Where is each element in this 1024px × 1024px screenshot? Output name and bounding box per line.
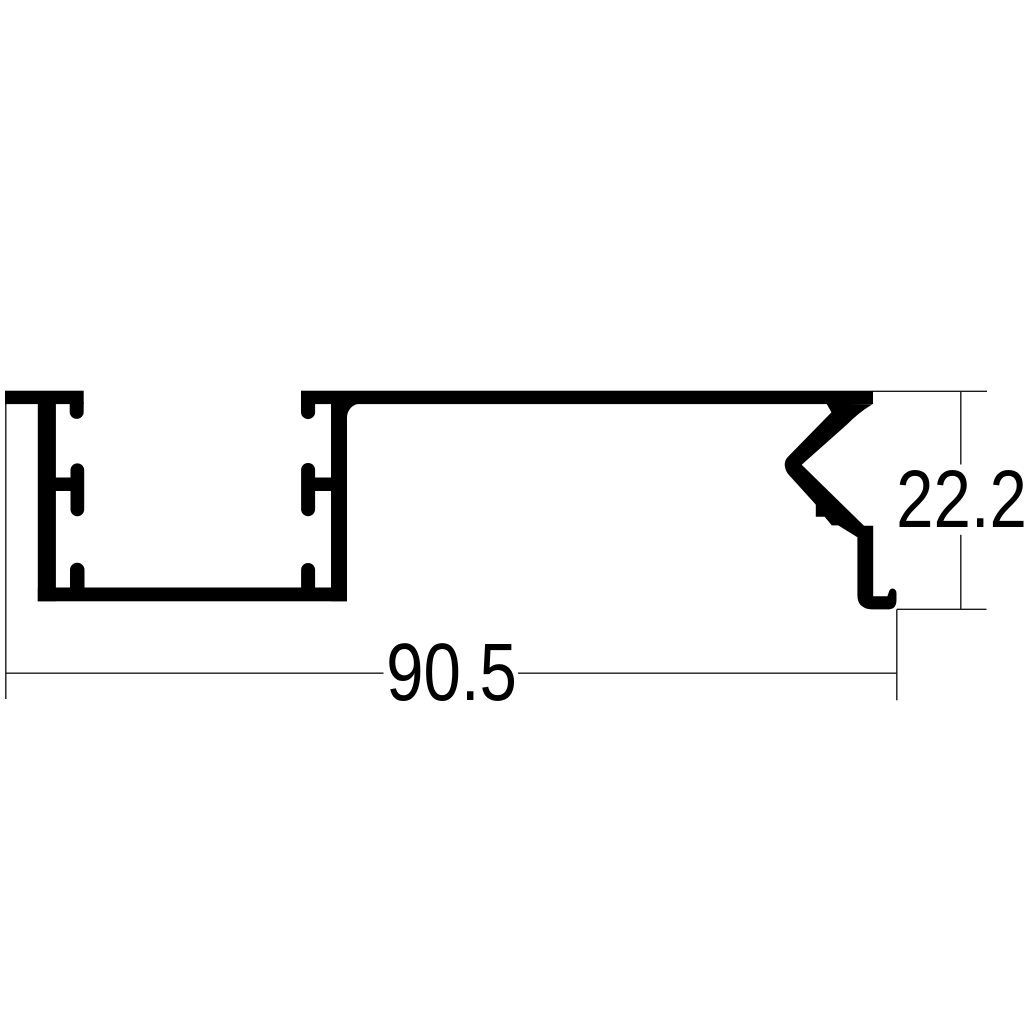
svg-text:22.2: 22.2	[896, 453, 1024, 545]
svg-text:90.5: 90.5	[386, 626, 517, 718]
